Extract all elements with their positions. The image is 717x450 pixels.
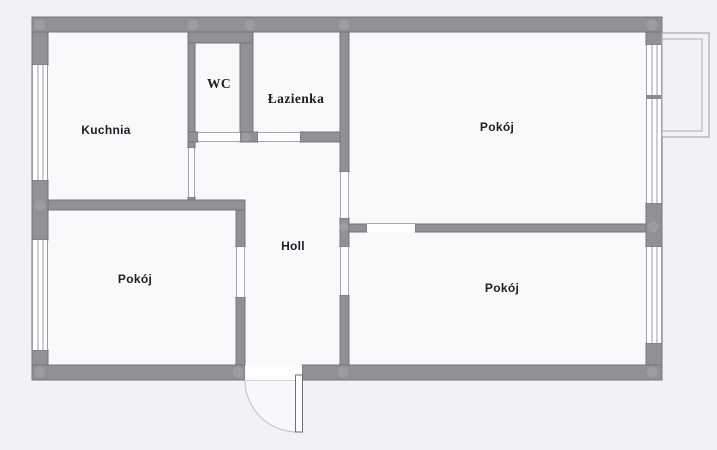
joint-dot bbox=[242, 133, 251, 142]
room-label-wc: WC bbox=[207, 76, 231, 92]
entrance-opening bbox=[245, 365, 302, 380]
pokoj-tr-opening bbox=[340, 172, 349, 218]
joint-dot bbox=[340, 223, 349, 232]
wall-pokoj-bl-top bbox=[48, 200, 245, 210]
wall-above-wc bbox=[188, 32, 253, 43]
pokoj-br-west-door-opening bbox=[340, 247, 349, 295]
balcony bbox=[662, 33, 709, 137]
wall-holl-right-upper bbox=[340, 32, 349, 172]
pokoj-bl-window bbox=[32, 240, 48, 350]
lazienka-door-opening bbox=[258, 132, 300, 142]
wall-pokoj-bl-right-lower bbox=[236, 297, 245, 365]
joint-dot bbox=[339, 20, 350, 31]
wall-under-lazienka-segment bbox=[300, 132, 340, 142]
floor-plan: Kuchnia WC Łazienka Pokój Pokój Pokój Ho… bbox=[0, 0, 717, 450]
wall-between-right-rooms bbox=[415, 224, 646, 232]
wall-wc-lazienka-divider bbox=[240, 43, 253, 132]
room-label-pokoj-top-right: Pokój bbox=[480, 120, 514, 134]
joint-dot bbox=[233, 367, 244, 378]
joint-dot bbox=[338, 367, 349, 378]
kuchnia-window bbox=[32, 65, 48, 180]
wall-holl-right-lower bbox=[340, 295, 349, 365]
pokoj-br-north-door-opening bbox=[367, 224, 415, 232]
joint-dot bbox=[35, 200, 46, 211]
room-label-holl: Holl bbox=[281, 239, 305, 253]
wall-pokoj-bl-right-upper bbox=[236, 210, 245, 247]
wc-door-opening bbox=[198, 132, 240, 142]
balcony-inner-rail bbox=[662, 39, 702, 131]
joint-dot bbox=[648, 222, 659, 233]
room-label-lazienka: Łazienka bbox=[268, 91, 324, 107]
room-label-pokoj-bottom-left: Pokój bbox=[118, 272, 152, 286]
wall-right-segment bbox=[646, 343, 662, 365]
entrance-door bbox=[245, 375, 303, 432]
wall-under-wc-segment bbox=[188, 132, 198, 142]
entrance-door-swing-area bbox=[245, 380, 297, 432]
room-label-pokoj-bottom-right: Pokój bbox=[485, 281, 519, 295]
entrance-door-leaf bbox=[296, 375, 303, 432]
pokoj-bl-door-opening bbox=[236, 247, 245, 297]
joint-dot bbox=[188, 20, 199, 31]
joint-dot bbox=[35, 20, 46, 31]
joint-dot bbox=[245, 20, 256, 31]
pokoj-br-window bbox=[646, 247, 662, 343]
pokoj-tr-balcony-window bbox=[646, 45, 662, 203]
wall-left-segment bbox=[32, 350, 48, 365]
joint-dot bbox=[35, 367, 46, 378]
wall-holl-right-middle bbox=[340, 218, 349, 247]
wall-between-right-rooms-stub bbox=[349, 224, 367, 232]
wall-bottom-right-of-entrance bbox=[302, 365, 662, 380]
wall-bottom-left-of-entrance bbox=[32, 365, 245, 380]
room-label-kuchnia: Kuchnia bbox=[81, 123, 130, 137]
floor-plan-drawing bbox=[0, 0, 717, 450]
joint-dot bbox=[647, 20, 658, 31]
window-divider bbox=[646, 95, 662, 99]
joint-dot bbox=[647, 367, 658, 378]
wall-right-segment bbox=[646, 32, 662, 45]
wall-left-segment bbox=[32, 32, 48, 65]
